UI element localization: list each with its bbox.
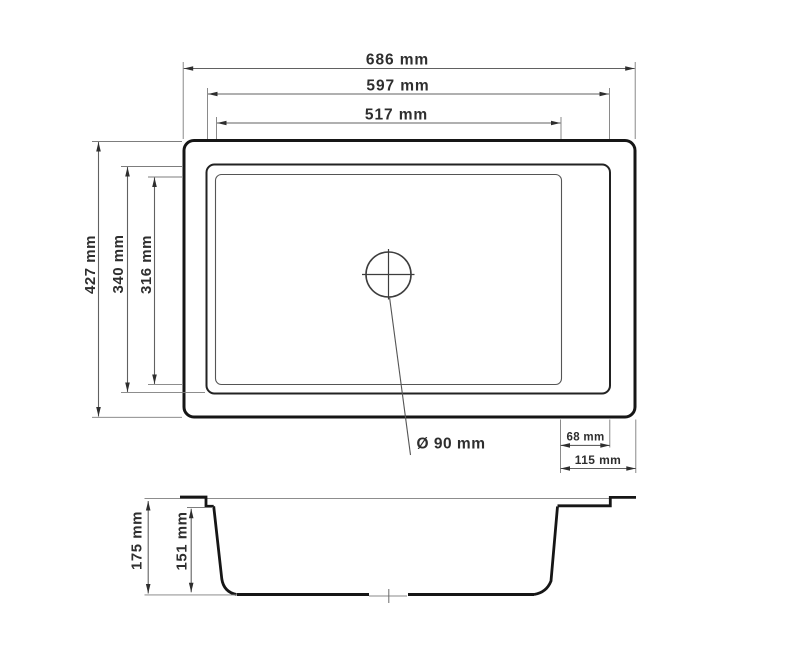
svg-text:151 mm: 151 mm	[174, 512, 191, 571]
svg-text:686 mm: 686 mm	[366, 52, 429, 69]
svg-text:Ø 90 mm: Ø 90 mm	[417, 436, 486, 453]
svg-text:175 mm: 175 mm	[129, 511, 146, 570]
svg-text:340 mm: 340 mm	[110, 235, 127, 294]
svg-text:517 mm: 517 mm	[365, 107, 428, 124]
svg-text:427 mm: 427 mm	[82, 235, 99, 294]
svg-text:68 mm: 68 mm	[567, 432, 605, 444]
svg-text:316 mm: 316 mm	[138, 235, 155, 294]
svg-text:597 mm: 597 mm	[366, 78, 429, 95]
svg-text:115 mm: 115 mm	[575, 453, 621, 467]
